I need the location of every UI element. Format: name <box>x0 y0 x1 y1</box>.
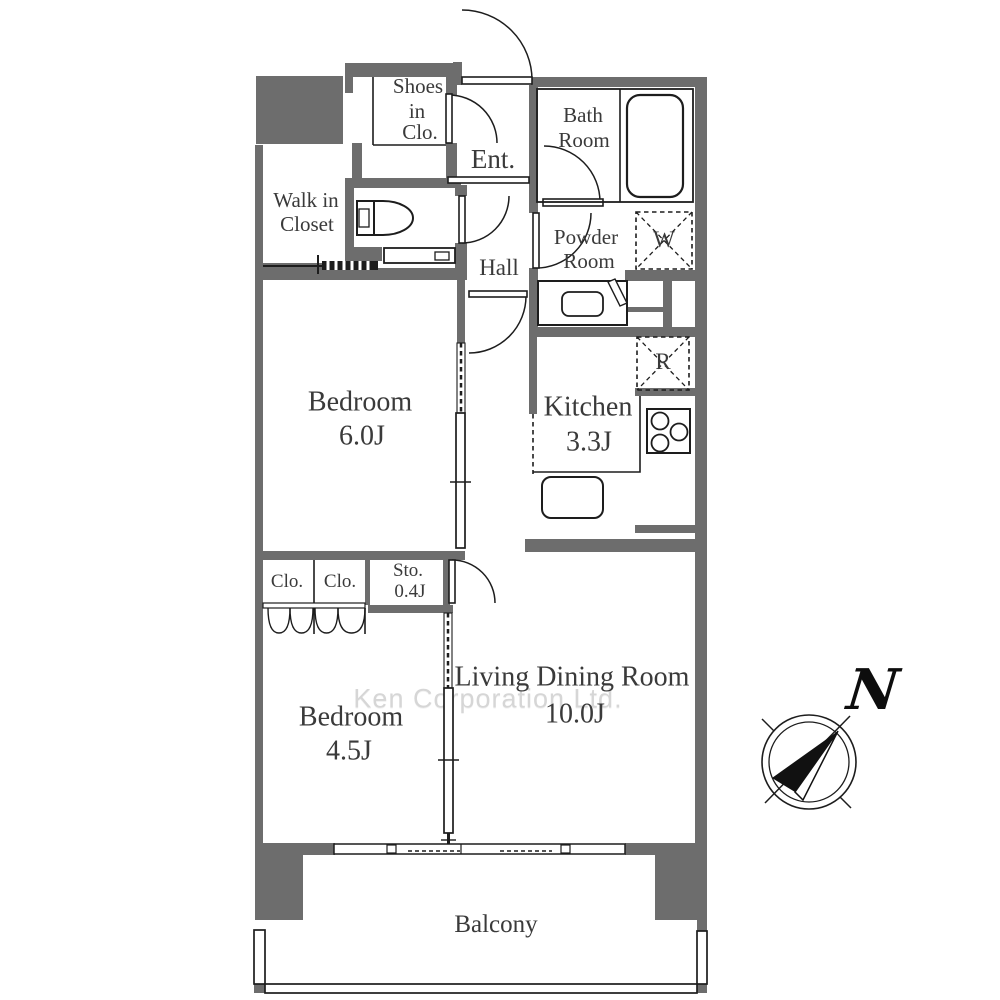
toilet-icon <box>357 201 413 235</box>
room-size-storage: 0.4J <box>394 582 425 602</box>
balcony-railing <box>265 984 697 993</box>
room-label-walk-in-closet-1: Walk in <box>273 189 338 211</box>
room-label-bathroom-1: Bath <box>563 104 603 126</box>
room-label-living-dining: Living Dining Room <box>455 662 690 691</box>
room-label-kitchen: Kitchen <box>544 392 633 421</box>
room-label-powder-room-2: Room <box>563 250 614 272</box>
bedroom-second-sliding-door <box>438 613 459 853</box>
toilet-counter <box>384 248 455 263</box>
living-room-door <box>469 291 527 353</box>
refrigerator-label: R <box>655 350 670 374</box>
floor-plan: Ken Corporation Ltd. <box>0 0 1000 1000</box>
room-label-shoes-closet-1: Shoes <box>393 75 443 97</box>
balcony-window <box>334 844 625 854</box>
room-size-kitchen: 3.3J <box>566 427 612 456</box>
north-label: N <box>844 657 902 723</box>
room-label-bathroom-2: Room <box>558 129 609 151</box>
balcony-partition-left <box>254 930 265 984</box>
kitchen-sink-icon <box>542 477 603 518</box>
room-label-shoes-closet-2: in <box>409 100 425 122</box>
room-label-walk-in-closet-2: Closet <box>280 213 334 235</box>
room-label-storage: Sto. <box>393 561 423 581</box>
compass-icon <box>762 715 856 809</box>
room-size-living-dining: 10.0J <box>545 699 605 728</box>
room-label-bedroom-second: Bedroom <box>299 702 403 731</box>
room-size-bedroom-second: 4.5J <box>326 736 372 765</box>
room-label-closet-right: Clo. <box>324 572 356 592</box>
storage-door <box>449 560 495 603</box>
bedroom-main-sliding-door <box>450 343 471 548</box>
shoes-closet-door <box>446 94 497 143</box>
room-label-closet-left: Clo. <box>271 572 303 592</box>
room-label-shoes-closet-3: Clo. <box>402 121 438 143</box>
room-size-bedroom-main: 6.0J <box>339 421 385 450</box>
toilet-door <box>459 196 509 243</box>
bath-door <box>543 146 603 206</box>
room-label-powder-room-1: Powder <box>554 226 618 248</box>
room-label-bedroom-main: Bedroom <box>308 387 412 416</box>
entrance-step <box>448 177 529 183</box>
room-label-entrance: Ent. <box>471 145 515 173</box>
room-label-balcony: Balcony <box>454 912 537 938</box>
stove-icon <box>647 409 690 453</box>
washer-label: W <box>653 228 675 252</box>
room-label-hall: Hall <box>479 256 519 280</box>
balcony-partition-right <box>697 931 707 984</box>
entry-door <box>462 10 532 84</box>
washbasin-icon <box>538 279 627 325</box>
